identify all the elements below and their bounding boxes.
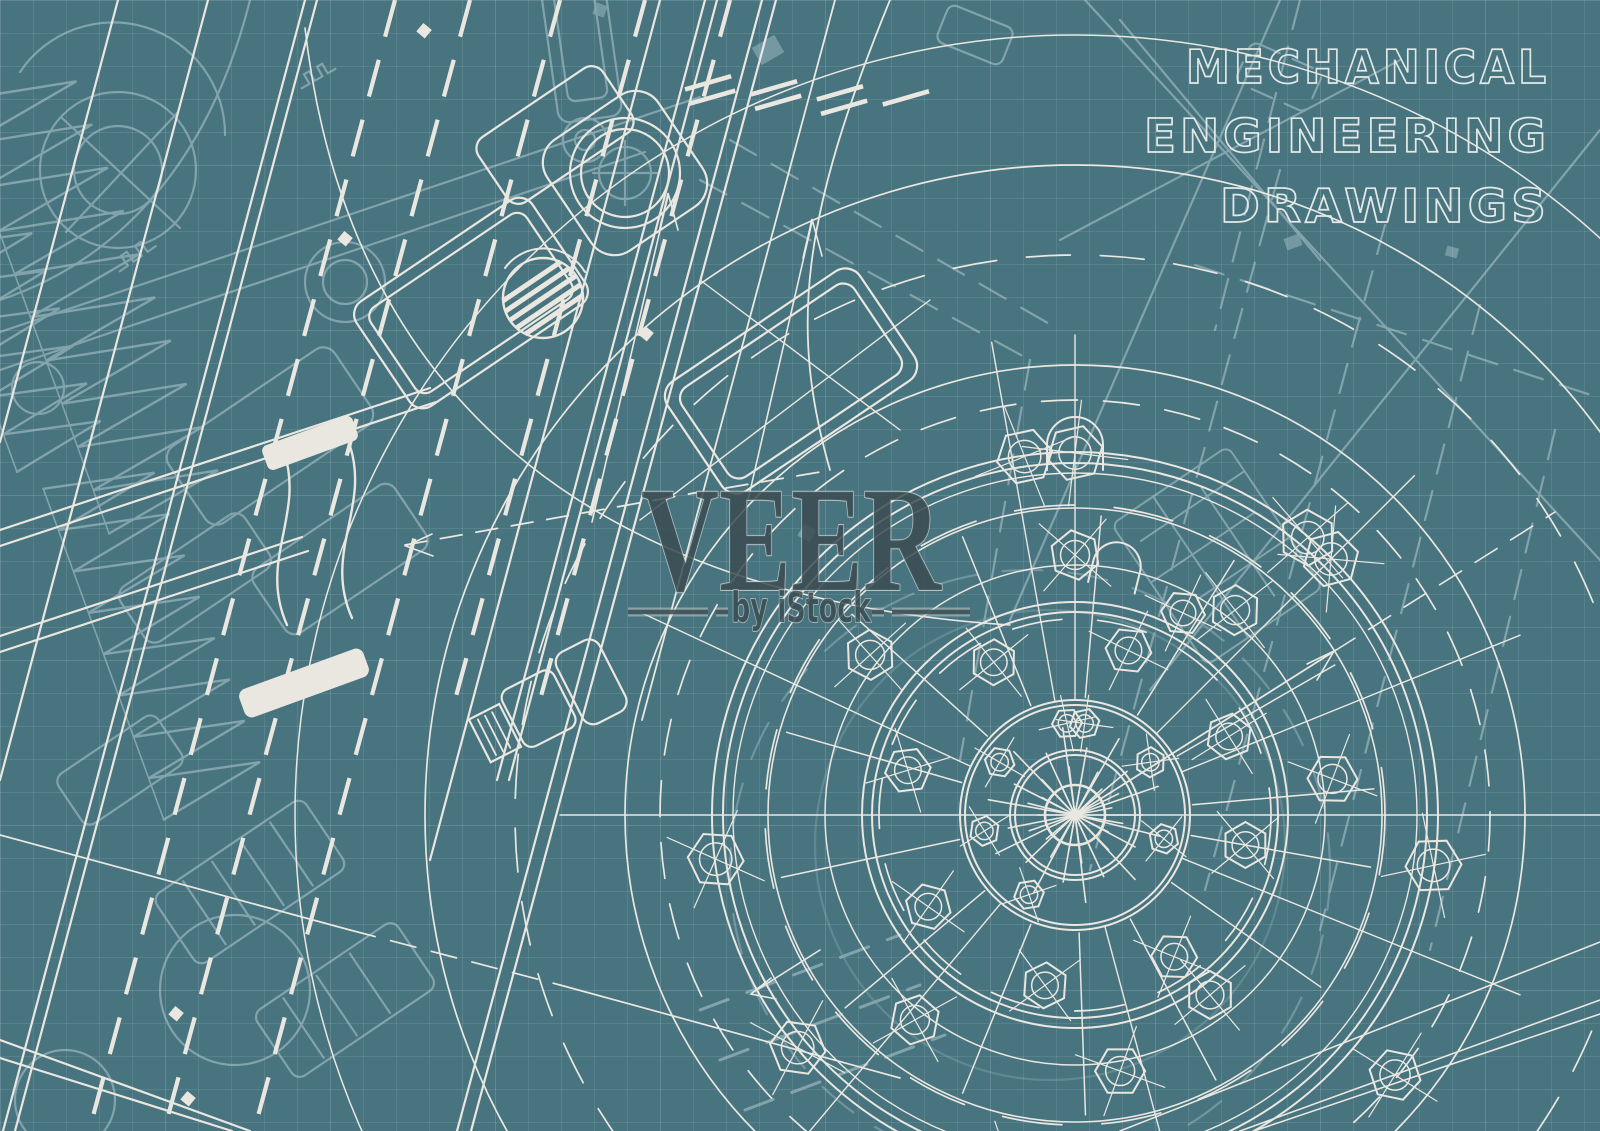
sweeping-curve <box>808 0 890 470</box>
faint-gear-arc <box>20 22 225 135</box>
flange-radial-line <box>1182 635 1520 772</box>
hex-nut-centermark <box>1369 1033 1421 1117</box>
hex-nut-centermark <box>995 1121 1030 1131</box>
hub-spoke <box>1026 789 1102 862</box>
flange-spoke <box>1085 516 1101 697</box>
bolt-detail <box>461 635 631 774</box>
flange-radial-line <box>640 612 971 766</box>
housing-plate <box>471 61 639 210</box>
faint-battlement-glyph <box>296 59 335 88</box>
title-line-3: DRAWINGS <box>1220 179 1550 233</box>
watermark: VEER by iStock <box>628 457 970 632</box>
flange-spoke <box>963 537 1031 706</box>
watermark-byline: by iStock <box>731 583 872 632</box>
flange-radial-line <box>1182 858 1520 995</box>
hex-nut-centermark <box>1104 1026 1136 1115</box>
flange-radial-line <box>1156 476 1414 734</box>
faint-motor-body <box>539 0 623 124</box>
hub-spoke <box>1046 771 1127 839</box>
hex-nut-centermark <box>1315 734 1349 823</box>
hex-nut-centermark <box>1198 581 1273 639</box>
hex-nut-centermark <box>960 635 1028 690</box>
faint-generated-springs <box>0 81 260 819</box>
flange-spoke <box>787 732 962 782</box>
blueprint-background: MECHANICAL ENGINEERING DRAWINGS VEER by … <box>0 0 1600 1131</box>
hex-nut-centermark <box>960 816 1008 846</box>
blueprint-drawing: MECHANICAL ENGINEERING DRAWINGS VEER by … <box>0 0 1600 1131</box>
hex-nut-centermark <box>1010 960 1081 1011</box>
hex-nut-centermark <box>903 871 953 943</box>
dashed-beams <box>89 0 730 1131</box>
title-line-1: MECHANICAL <box>1186 40 1550 94</box>
spring-rail <box>0 246 17 472</box>
flange-spoke <box>963 924 1031 1093</box>
faint-hatched-block <box>252 919 438 1080</box>
spring-rail <box>43 489 163 820</box>
hub-spoke <box>1014 752 1109 850</box>
title-block: MECHANICAL ENGINEERING DRAWINGS <box>1144 40 1550 233</box>
title-line-2: ENGINEERING <box>1144 109 1550 163</box>
faint-hatched-block <box>152 797 348 967</box>
spring-coil <box>43 473 260 820</box>
hex-nut-centermark <box>1002 885 1056 904</box>
flange-radial-line <box>766 903 1001 1131</box>
hatch-ladder <box>685 25 929 156</box>
